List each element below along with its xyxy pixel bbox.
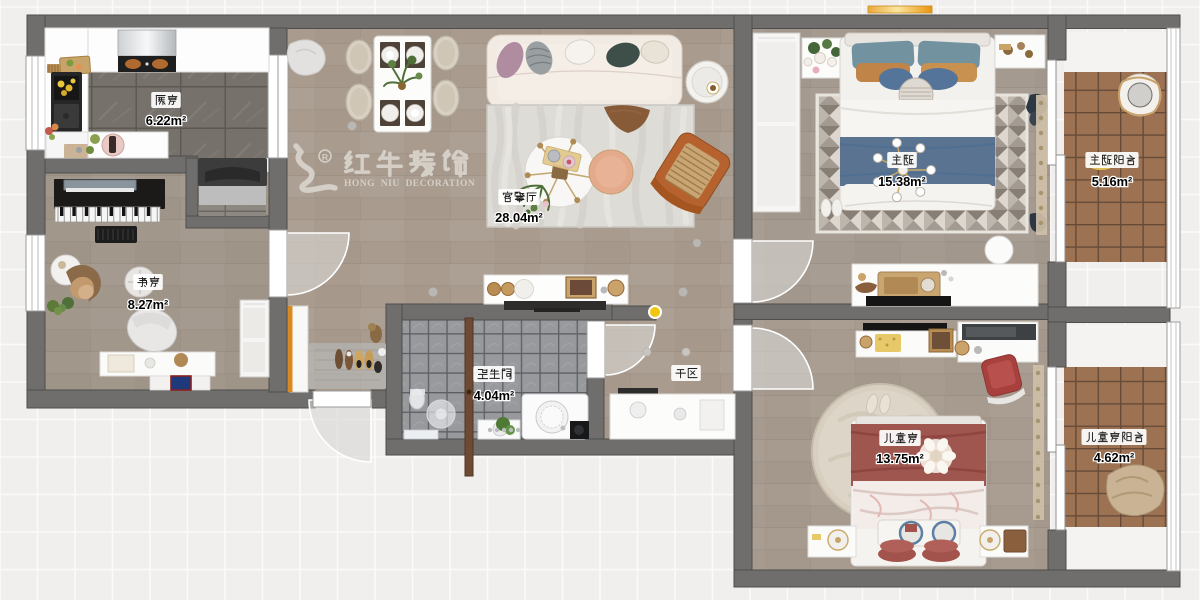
svg-text:13.75m²: 13.75m² xyxy=(876,451,924,466)
svg-text:HONG NIU DECORATION: HONG NIU DECORATION xyxy=(344,179,475,189)
svg-text:5.16m²: 5.16m² xyxy=(1092,174,1133,189)
svg-text:R: R xyxy=(322,152,328,162)
svg-text:15.38m²: 15.38m² xyxy=(878,174,926,189)
svg-text:6.22m²: 6.22m² xyxy=(146,113,187,128)
svg-text:8.27m²: 8.27m² xyxy=(128,297,169,312)
svg-text:28.04m²: 28.04m² xyxy=(495,210,543,225)
svg-text:4.04m²: 4.04m² xyxy=(474,388,515,403)
svg-text:4.62m²: 4.62m² xyxy=(1094,450,1135,465)
